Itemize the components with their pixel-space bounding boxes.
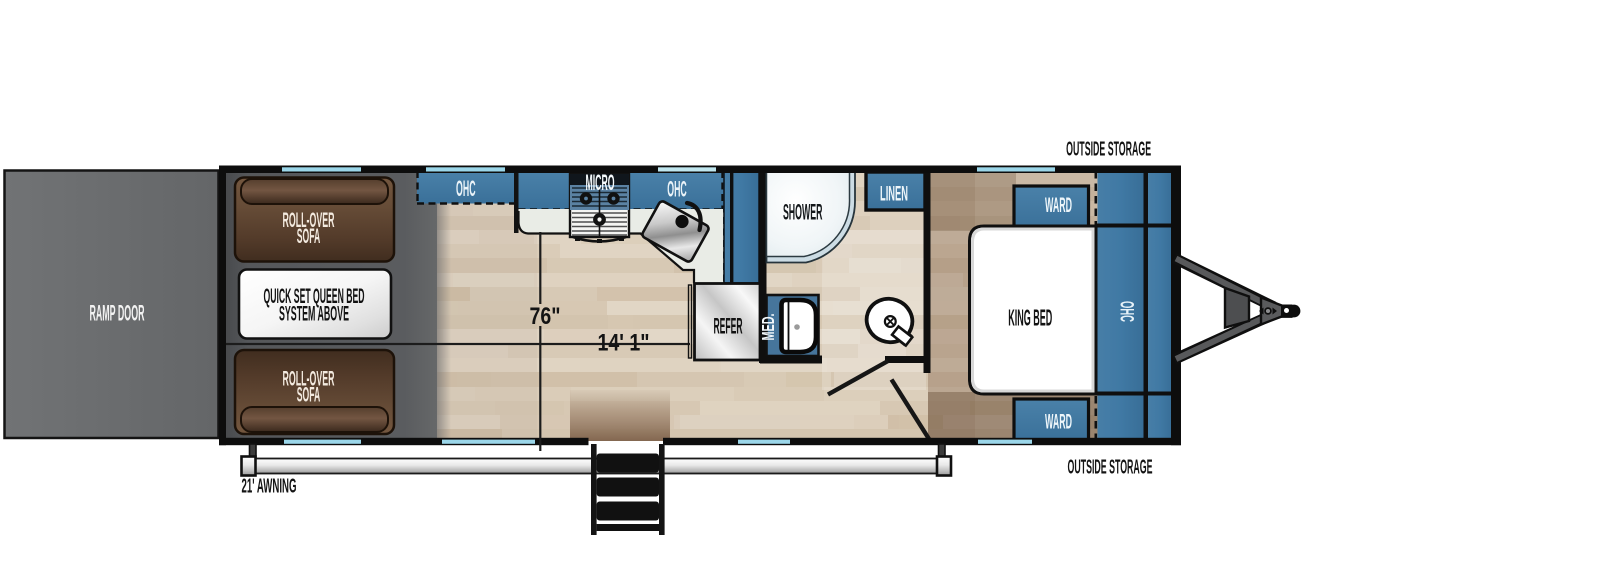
svg-text:REFER: REFER xyxy=(714,314,743,339)
svg-text:OUTSIDE STORAGE: OUTSIDE STORAGE xyxy=(1066,139,1151,161)
svg-text:SOFA: SOFA xyxy=(297,384,321,407)
svg-text:RAMP DOOR: RAMP DOOR xyxy=(90,301,145,326)
svg-text:SOFA: SOFA xyxy=(297,225,321,248)
svg-text:14' 1": 14' 1" xyxy=(598,330,650,357)
svg-text:OHC: OHC xyxy=(1116,301,1137,322)
svg-text:MED.: MED. xyxy=(758,314,778,341)
svg-text:WARD: WARD xyxy=(1045,411,1072,434)
svg-text:OHC: OHC xyxy=(456,176,476,201)
svg-text:MICRO: MICRO xyxy=(586,170,615,195)
svg-text:SYSTEM ABOVE: SYSTEM ABOVE xyxy=(279,302,349,326)
svg-text:76": 76" xyxy=(530,303,561,330)
svg-text:WARD: WARD xyxy=(1045,194,1072,217)
svg-text:21' AWNING: 21' AWNING xyxy=(242,476,297,498)
svg-text:LINEN: LINEN xyxy=(880,183,908,206)
svg-text:OUTSIDE STORAGE: OUTSIDE STORAGE xyxy=(1068,457,1153,479)
svg-text:KING BED: KING BED xyxy=(1008,304,1052,330)
svg-text:SHOWER: SHOWER xyxy=(783,200,823,225)
svg-text:OHC: OHC xyxy=(667,177,687,202)
